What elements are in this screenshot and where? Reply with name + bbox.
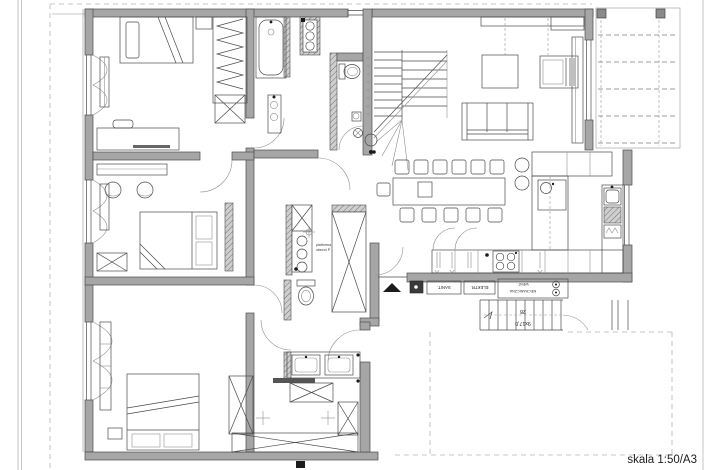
dishwasher	[604, 225, 621, 238]
stair-treads	[374, 52, 447, 116]
terrace-decking	[596, 8, 680, 148]
floor-plan-drawing: platforma obecní P	[0, 0, 720, 470]
washbasin	[268, 95, 281, 133]
double-bed	[127, 374, 199, 450]
single-bed	[120, 17, 193, 63]
sofa	[462, 103, 533, 140]
desk	[97, 120, 179, 150]
table-item	[418, 182, 432, 197]
bar-stool	[515, 158, 529, 172]
shelf-unit	[572, 37, 583, 143]
vent-label-2: MECHANICZNA	[509, 289, 536, 293]
entrance	[378, 277, 407, 292]
appliance	[604, 207, 621, 223]
service-core: platforma obecní P	[292, 205, 366, 312]
console	[97, 164, 167, 175]
elektr-label: ELEKTR.	[471, 285, 489, 290]
dining-chairs	[377, 160, 504, 222]
kitchen-counter-east	[602, 185, 623, 273]
plumbing-shaft	[292, 205, 312, 272]
kitchen-counter-south	[432, 228, 623, 273]
cooktop	[485, 251, 519, 272]
scale-label: skala 1:50/A3	[627, 454, 697, 466]
toilet-lower	[297, 280, 315, 305]
living-room	[462, 17, 584, 143]
bathtub	[256, 17, 286, 78]
wall-marker	[296, 461, 305, 468]
bedroom-top-left	[97, 17, 247, 150]
platform-shaft	[332, 205, 366, 312]
nightstand	[108, 428, 122, 439]
media-sideboard	[481, 17, 584, 26]
double-bed	[140, 212, 217, 269]
bedroom-mid-left	[97, 164, 217, 271]
window-left-1	[87, 55, 108, 115]
desk-chair	[113, 120, 133, 128]
toilet	[339, 64, 360, 79]
stair-riser-label: 9x17,0	[515, 320, 531, 326]
sanit-label: SANIT.	[437, 285, 450, 290]
side-ramp-lines	[612, 300, 628, 330]
dining-area	[377, 160, 505, 222]
chair	[105, 182, 121, 198]
vanity-counter	[287, 352, 360, 378]
window-left-2	[87, 180, 108, 243]
terrace-post	[656, 9, 665, 18]
floor-plan-sheet: platforma obecní P	[0, 0, 720, 470]
stair-direction-tail	[484, 312, 492, 319]
corner-sink	[352, 112, 361, 121]
stair-winders	[376, 120, 408, 170]
staircase-main	[365, 50, 447, 170]
shelf	[273, 378, 315, 383]
stair-tread-label: 28	[520, 308, 526, 314]
platform-label-1: platforma	[316, 243, 331, 247]
closet-cross-marks	[256, 411, 335, 425]
vent-label-1: WENT.	[517, 282, 528, 286]
kitchen	[432, 152, 623, 273]
radiator	[100, 184, 109, 230]
kitchen-island	[532, 152, 612, 250]
terrace-post	[597, 9, 606, 18]
platform-label-2: obecní P	[316, 248, 331, 252]
chair	[137, 182, 153, 198]
dining-table	[393, 178, 505, 205]
exterior-stairs: 28 9x17,0	[480, 300, 628, 330]
wardrobe	[213, 17, 247, 123]
washbasin-column	[300, 17, 320, 55]
bedroom-bottom-left	[100, 322, 253, 450]
entrance-arrow-icon	[383, 283, 401, 292]
coffee-table	[482, 55, 518, 88]
bar-stool	[515, 176, 529, 190]
nightstand	[196, 17, 212, 29]
